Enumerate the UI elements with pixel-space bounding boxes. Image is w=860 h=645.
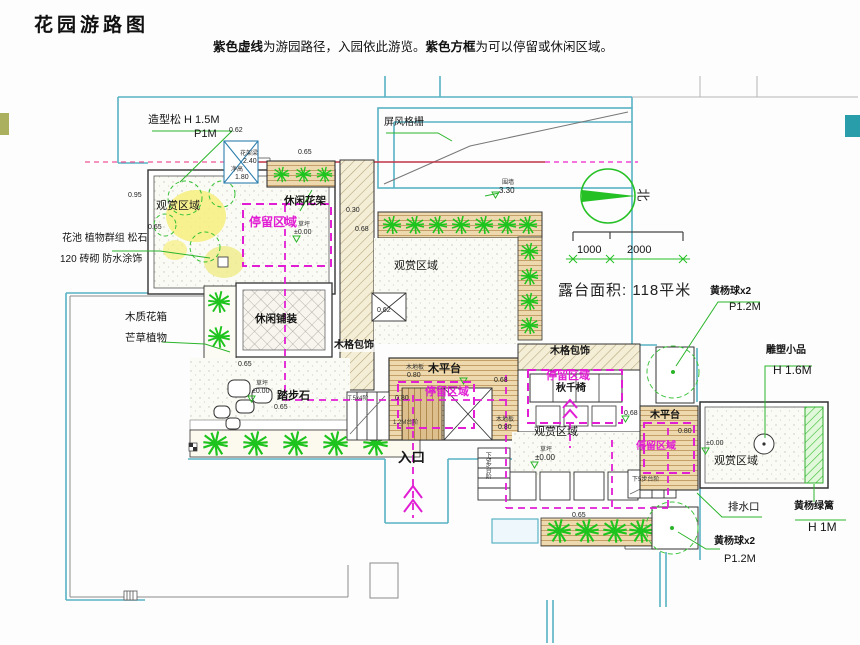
- label-stepping-stones: 踏步石: [277, 391, 310, 403]
- label-entrance: 入口: [398, 451, 425, 465]
- label-sculpture-h: H 1.6M: [773, 364, 812, 377]
- label-terrace-area: 露台面积: 118平米: [558, 283, 691, 299]
- label-scale-1000: 1000: [577, 245, 601, 257]
- label-boxwood-x2-top: 黄杨球x2: [710, 287, 751, 298]
- label-clear-height-tag: 净高: [231, 167, 243, 173]
- label-brick-waterproof: 120 砖砌 防水涂饰: [60, 255, 142, 266]
- label-deckboard-tag-1: 木地板: [406, 365, 424, 371]
- page-title: 花园游路图: [34, 10, 149, 37]
- label-deckboard-tag-2: 木地板: [496, 417, 514, 423]
- small-pool: [492, 519, 538, 543]
- label-swing-chair: 秋千椅: [556, 384, 586, 395]
- label-lawn-tag-3: 草坪: [256, 381, 268, 387]
- label-dim-065-pergola: 0.65: [298, 149, 312, 156]
- label-dim-180: 1.80: [235, 174, 249, 181]
- label-dim-080-deck1: 0.80: [407, 372, 421, 379]
- label-dim-240: 2.40: [243, 158, 257, 165]
- label-elev-330: 3.30: [499, 187, 515, 195]
- label-dim-030: 0.30: [346, 207, 360, 214]
- label-stay-area-2: 停留区域: [425, 387, 469, 399]
- label-wood-planter: 木质花箱: [125, 312, 167, 323]
- north-compass: [581, 169, 635, 223]
- label-lattice-left: 木格包饰: [333, 341, 375, 352]
- label-elev-000-swing: ±0.00: [535, 454, 555, 462]
- label-dim-068-strip: 0.68: [355, 226, 369, 233]
- label-stay-area-1: 停留区域: [249, 216, 297, 229]
- pond-water: [166, 190, 226, 242]
- pergola-strip: [267, 161, 335, 187]
- plant-strip-top: [378, 212, 542, 238]
- label-steps-down-left: 下5步台阶: [484, 452, 490, 479]
- label-viewing-area-east: 观赏区域: [714, 456, 758, 468]
- label-sculpture: 雕塑小品: [766, 346, 806, 357]
- survey-marker: [189, 443, 197, 451]
- label-dim-080-deck2: 0.80: [395, 395, 409, 402]
- legend-bold-box: 紫色方框: [426, 40, 476, 54]
- plant-column-right: [518, 237, 542, 340]
- lattice-wall-left: [340, 160, 374, 390]
- label-hedge-h: H 1M: [808, 521, 837, 534]
- label-dim-065-paving: 0.65: [238, 361, 252, 368]
- label-elev-000-stay: ±0.00: [294, 229, 311, 236]
- label-dim-065-stones: 0.65: [274, 404, 288, 411]
- label-lawn-tag-1: 草坪: [298, 222, 310, 228]
- label-dim-062-waterfeature: 0.62: [377, 307, 391, 314]
- label-elev-000-stones: ±0.00: [252, 388, 269, 395]
- boxwood-planter-bottom: [646, 502, 698, 554]
- label-boxwood-p12-top: P1.2M: [729, 302, 761, 314]
- label-steps-down-right: 下5步台阶: [632, 477, 659, 483]
- label-scale-2000: 2000: [627, 245, 651, 257]
- label-dim-065-bottom: 0.65: [572, 512, 586, 519]
- label-north: 北: [636, 188, 650, 201]
- label-hedge: 黄杨绿篱: [794, 502, 834, 513]
- boxwood-hedge: [805, 407, 823, 483]
- label-flower-pool: 花池 植物群组 松石: [62, 234, 148, 245]
- right-edge-chip: [845, 115, 860, 137]
- label-miscanthus: 芒草植物: [125, 333, 167, 344]
- legend-bold-dashed-line: 紫色虚线: [213, 40, 263, 54]
- label-viewing-area-lawn: 观赏区域: [394, 261, 438, 273]
- label-dim-065-pond: 0.65: [148, 224, 162, 231]
- label-screen-grille: 屏风格栅: [384, 118, 424, 129]
- left-edge-chip: [0, 113, 9, 135]
- label-viewing-area-swing: 观赏区域: [534, 427, 578, 439]
- label-boxwood-x2-bottom: 黄杨球x2: [714, 537, 755, 548]
- label-dim-080-deck3: 0.80: [498, 424, 512, 431]
- big-lawn: [374, 238, 540, 344]
- legend-note: 紫色虚线为游园路径，入园依此游览。紫色方框为可以停留或休闲区域。: [213, 36, 613, 55]
- label-leisure-paving: 休闲铺装: [255, 314, 297, 325]
- label-dim-068-rightdeck: 0.68: [624, 410, 638, 417]
- label-shaped-pine: 造型松 H 1.5M: [148, 115, 220, 127]
- label-viewing-area-pond: 观赏区域: [156, 201, 200, 213]
- label-dim-080-rightdeck: 0.80: [678, 428, 692, 435]
- label-dim-068-deck: 0.68: [494, 377, 508, 384]
- boxwood-planter-top: [647, 346, 699, 403]
- label-dim-062-top: 0.62: [229, 127, 243, 134]
- gate-marker: [124, 591, 137, 600]
- label-deck-center: 木平台: [428, 364, 461, 376]
- label-leisure-pergola: 休闲花架: [284, 196, 326, 207]
- garden-plan-canvas: 花园游路图 紫色虚线为游园路径，入园依此游览。紫色方框为可以停留或休闲区域。 造…: [0, 0, 860, 645]
- label-lattice-right: 木格包饰: [550, 347, 590, 358]
- label-drain: 排水口: [728, 502, 760, 513]
- label-step-12m: 1.2M台阶: [393, 420, 418, 426]
- swing-area: [512, 344, 640, 478]
- label-stay-area-4: 停留区域: [636, 442, 676, 453]
- label-deck-right: 木平台: [650, 411, 680, 422]
- label-boxwood-p12-bottom: P1.2M: [724, 554, 756, 566]
- label-elev-000-east: ±0.00: [706, 440, 723, 447]
- label-stay-area-3: 停留区域: [546, 371, 590, 383]
- label-pergola-beam-tag: 花架梁: [240, 151, 258, 157]
- label-dim-095: 0.95: [128, 192, 142, 199]
- label-step-t5x4: T.5x4阶: [348, 396, 368, 402]
- label-p1m: P1M: [194, 129, 217, 141]
